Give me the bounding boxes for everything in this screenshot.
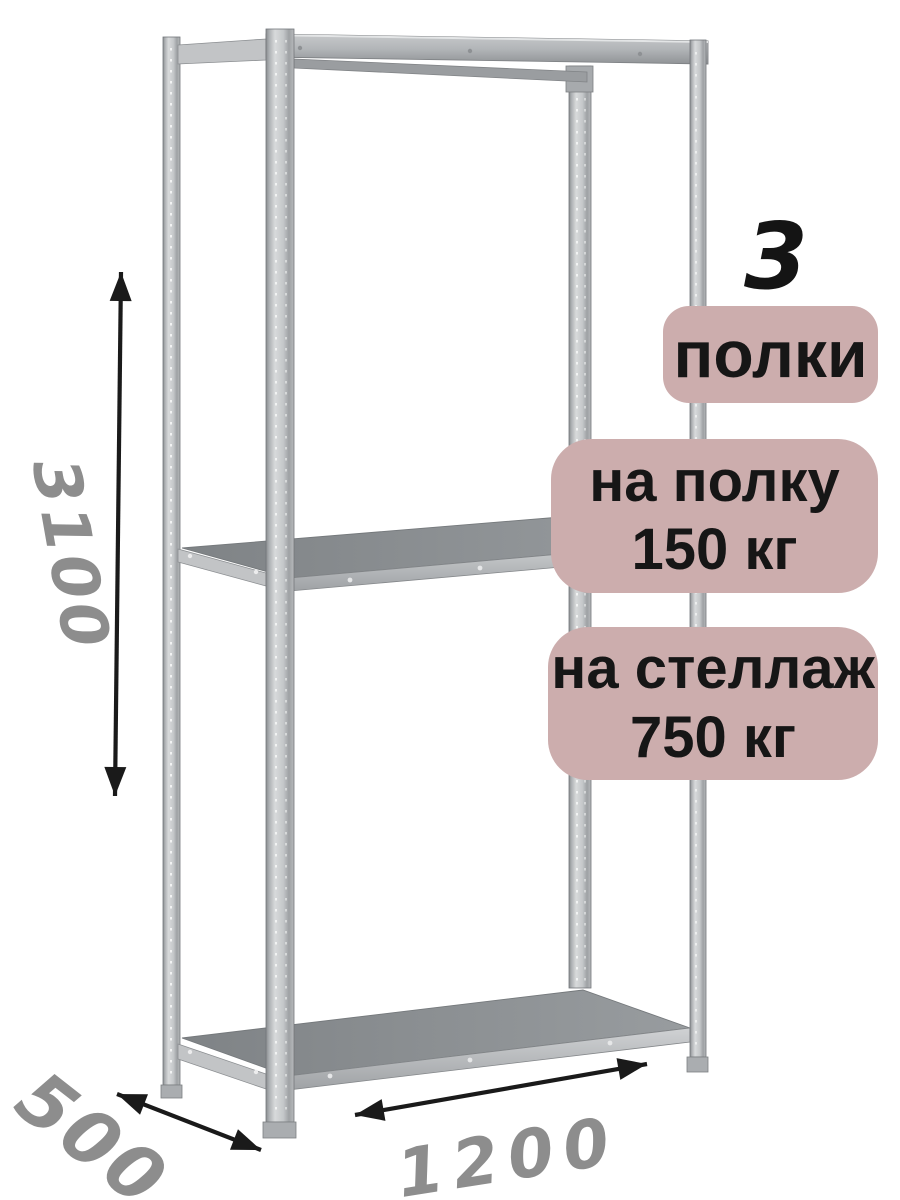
product-image: 3100 500 1200 3 полки на полку 150 кг на… — [0, 0, 900, 1200]
post-foot — [161, 1085, 182, 1098]
rack-load-line1: на стеллаж — [551, 635, 874, 703]
shelf-count-badge-label: полки — [673, 316, 867, 394]
rack-load-line2: 750 кг — [630, 704, 796, 772]
shelf-load-line1: на полку — [589, 448, 840, 516]
shelf-count-badge: полки — [663, 306, 878, 403]
height-dimension-arrow — [115, 272, 121, 796]
shelving-rack-drawing — [0, 0, 900, 1200]
shelf-load-line2: 150 кг — [631, 516, 797, 584]
shelf-load-badge: на полку 150 кг — [551, 439, 878, 593]
bottom-shelf — [178, 990, 690, 1090]
rack-load-badge: на стеллаж 750 кг — [548, 627, 878, 780]
top-shelf — [178, 34, 708, 82]
shelf-count: 3 — [706, 206, 846, 306]
post-front-left — [263, 29, 296, 1138]
post-back-left — [161, 37, 182, 1098]
post-foot — [687, 1057, 708, 1072]
post-foot — [263, 1122, 296, 1138]
